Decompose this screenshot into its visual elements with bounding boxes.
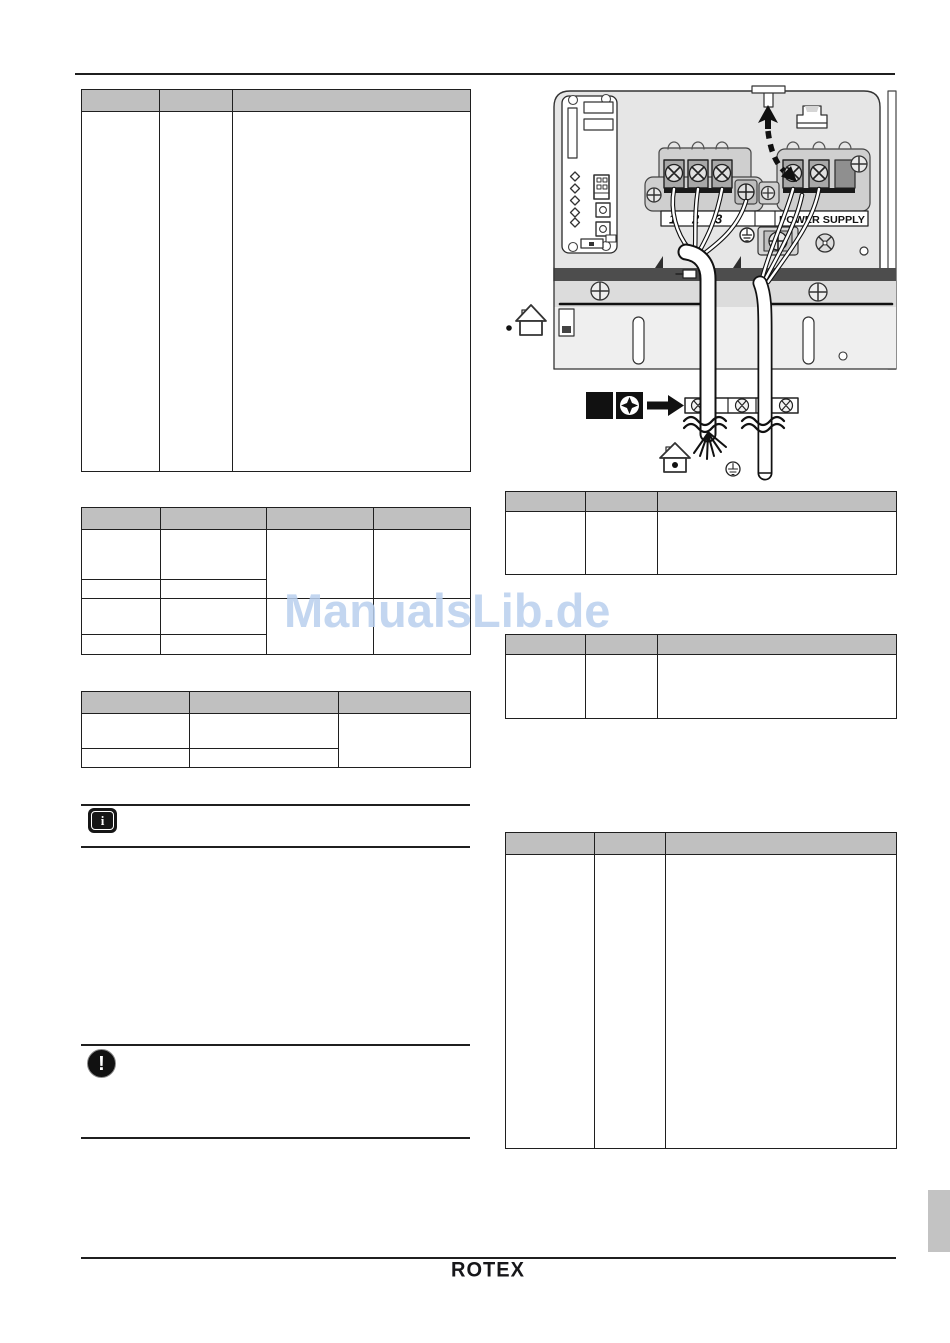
- legend-arrow: [647, 395, 684, 416]
- table2-cell: [161, 530, 267, 580]
- table-r1-header-cell: [586, 492, 658, 512]
- table-r1-cell: [586, 512, 658, 575]
- table1-cell: [160, 112, 233, 472]
- table2-cell: [82, 635, 161, 655]
- table-r3-header-cell: [595, 833, 666, 855]
- case-screw-x: [816, 234, 834, 252]
- table1-header-cell: [160, 90, 233, 112]
- spec-table-right-3: [505, 832, 897, 1149]
- caution-icon: !: [87, 1049, 116, 1078]
- table2-header-cell: [374, 508, 471, 530]
- pcb-panel: [562, 95, 617, 254]
- flat-screwdriver-key: [586, 392, 613, 419]
- watermark: ManualsLib.de: [284, 583, 610, 638]
- table2-header-cell: [267, 508, 374, 530]
- info-icon: i: [88, 808, 117, 833]
- terminal-label-strip: 1 2 3 POWER SUPPLY: [661, 211, 868, 227]
- ground-symbol-icon: [726, 462, 740, 476]
- table3-cell: [82, 749, 190, 768]
- table2-cell: [161, 635, 267, 655]
- table2-cell: [82, 530, 161, 580]
- spec-table-3: [81, 691, 471, 768]
- table3-header-cell: [339, 692, 471, 714]
- info-note-bottom-rule: [81, 846, 470, 848]
- spec-table-right-1: [505, 491, 897, 575]
- info-icon-glyph: i: [91, 811, 114, 830]
- table-r2-header-cell: [658, 635, 897, 655]
- info-note-top-rule: [81, 804, 470, 806]
- caution-icon-glyph: !: [98, 1054, 105, 1074]
- table-r3-cell: [666, 855, 897, 1149]
- table2-cell: [161, 580, 267, 599]
- table-r1-header-cell: [658, 492, 897, 512]
- house-outdoor-icon: [506, 305, 546, 335]
- caution-note-top-rule: [81, 1044, 470, 1046]
- page-top-rule: [75, 73, 895, 75]
- table1-cell: [82, 112, 160, 472]
- table-r3-header-cell: [506, 833, 595, 855]
- caution-note-bottom-rule: [81, 1137, 470, 1139]
- page-edge-tab: [928, 1190, 950, 1252]
- small-hole: [860, 247, 868, 255]
- table-r2-cell: [586, 655, 658, 719]
- table1-cell: [233, 112, 471, 472]
- earth-terminal-icon: [740, 228, 754, 242]
- table-r1-cell: [658, 512, 897, 575]
- dip-switch: [594, 175, 609, 199]
- table2-header-cell: [82, 508, 161, 530]
- table-r2-cell: [506, 655, 586, 719]
- table2-header-cell: [161, 508, 267, 530]
- manual-page: { "page": { "watermark_text": "ManualsLi…: [0, 0, 950, 1343]
- table1-header-cell: [233, 90, 471, 112]
- table-r3-cell: [595, 855, 666, 1149]
- spec-table-1: [81, 89, 471, 472]
- wiring-diagram: 1 2 3 POWER SUPPLY: [502, 83, 902, 485]
- table1-header-cell: [82, 90, 160, 112]
- table3-cell: [190, 749, 339, 768]
- spec-table-right-2: [505, 634, 897, 719]
- table3-header-cell: [82, 692, 190, 714]
- lower-casing: [554, 268, 896, 369]
- table-r3-cell: [506, 855, 595, 1149]
- table3-cell: [82, 714, 190, 749]
- table3-cell: [190, 714, 339, 749]
- table2-cell: [82, 580, 161, 599]
- table-r1-header-cell: [506, 492, 586, 512]
- cable-tie: [683, 270, 696, 278]
- table2-cell: [161, 599, 267, 635]
- table-r2-cell: [658, 655, 897, 719]
- tool-legend: [586, 392, 684, 419]
- table2-cell: [82, 599, 161, 635]
- table-r1-cell: [506, 512, 586, 575]
- brand-logo: ROTEX: [433, 1258, 543, 1282]
- table3-cell: [339, 714, 471, 768]
- table-r3-header-cell: [666, 833, 897, 855]
- table3-header-cell: [190, 692, 339, 714]
- house-indoor-icon: [660, 443, 690, 472]
